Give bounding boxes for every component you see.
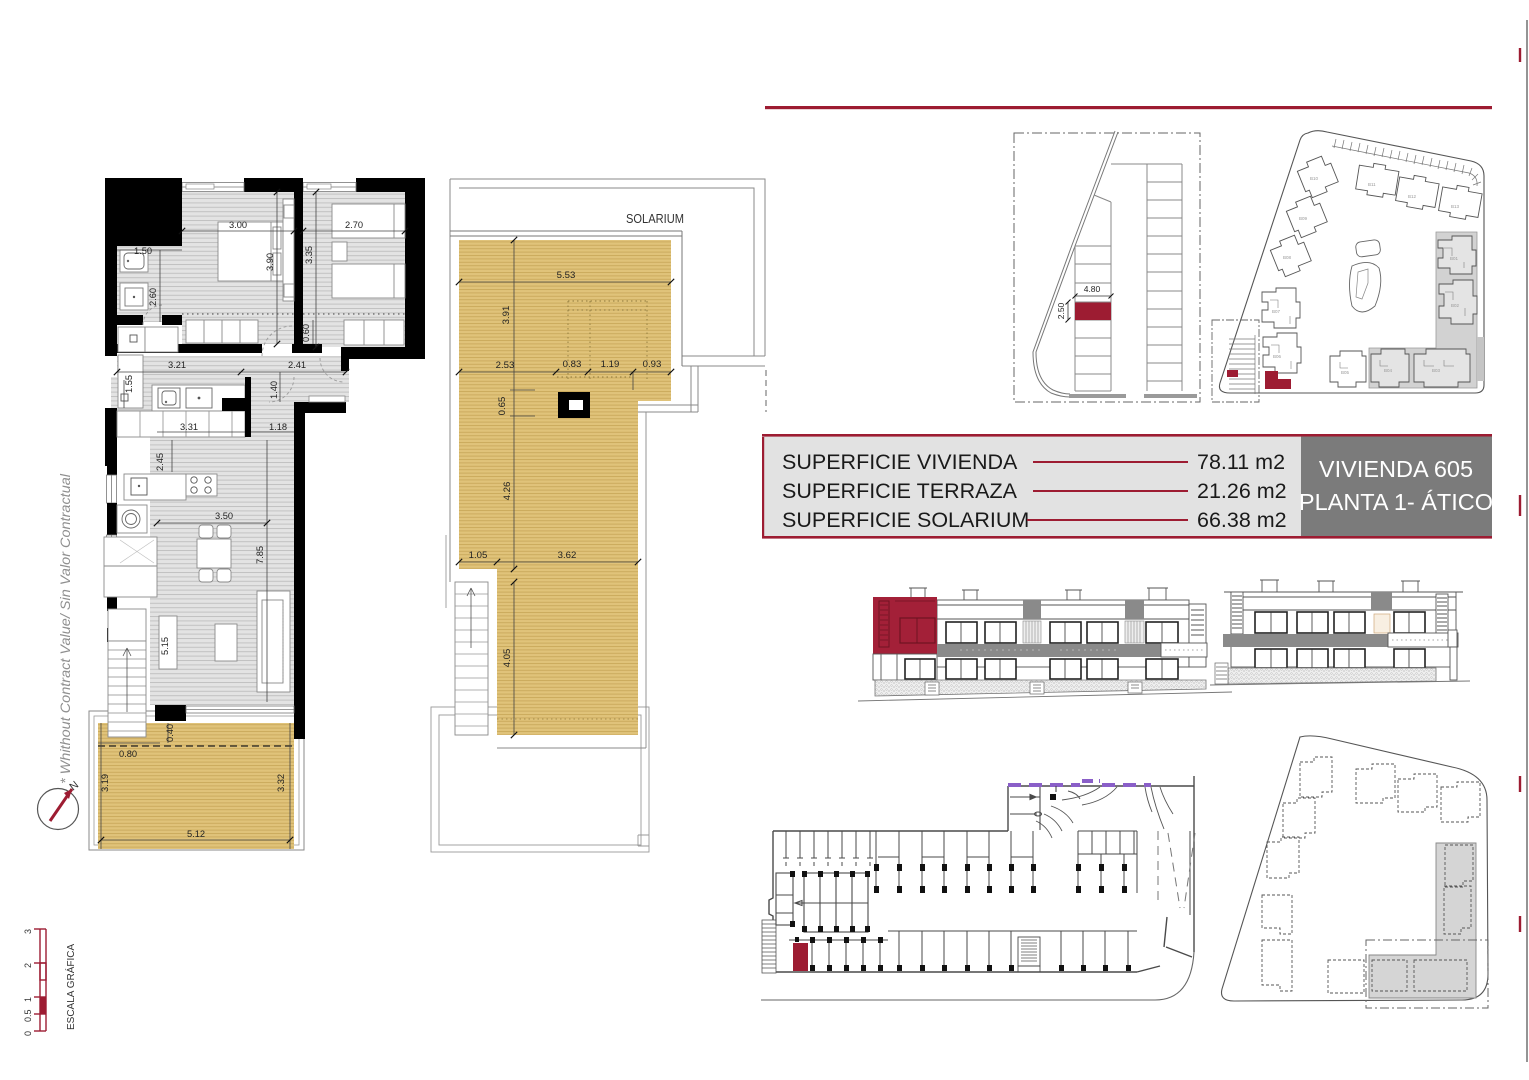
svg-text:1: 1: [23, 997, 33, 1002]
svg-text:0.60: 0.60: [301, 324, 311, 342]
svg-text:B01: B01: [1450, 256, 1459, 261]
svg-text:B11: B11: [1368, 182, 1376, 187]
svg-text:1.50: 1.50: [134, 246, 152, 256]
svg-text:0.40: 0.40: [165, 724, 175, 742]
svg-text:5.12: 5.12: [187, 829, 205, 839]
svg-text:0.83: 0.83: [563, 359, 582, 370]
svg-text:2: 2: [23, 963, 33, 968]
svg-text:PLANTA 1- ÁTICO: PLANTA 1- ÁTICO: [1299, 489, 1493, 515]
svg-text:3.00: 3.00: [229, 220, 247, 230]
svg-text:21.26 m2: 21.26 m2: [1197, 479, 1287, 503]
svg-text:2.41: 2.41: [288, 360, 306, 370]
svg-text:ESCALA GRÁFICA: ESCALA GRÁFICA: [64, 944, 77, 1030]
svg-text:1.55: 1.55: [124, 375, 134, 393]
svg-text:B06: B06: [1273, 354, 1282, 359]
svg-text:* Whithout Contract Value/ Sin: * Whithout Contract Value/ Sin Valor Con…: [58, 473, 73, 784]
svg-text:SOLARIUM: SOLARIUM: [626, 211, 684, 226]
svg-text:3.50: 3.50: [215, 511, 233, 521]
svg-text:1.18: 1.18: [269, 422, 287, 432]
svg-text:4.26: 4.26: [502, 482, 513, 501]
svg-text:5.15: 5.15: [160, 637, 170, 655]
svg-text:0.5: 0.5: [23, 1009, 33, 1022]
svg-text:3.62: 3.62: [558, 550, 577, 561]
svg-text:B05: B05: [1341, 370, 1350, 375]
svg-text:3.35: 3.35: [304, 246, 314, 264]
svg-text:4.05: 4.05: [502, 649, 513, 668]
svg-text:3.91: 3.91: [501, 306, 512, 325]
svg-text:2.50: 2.50: [1056, 302, 1066, 319]
svg-text:5.53: 5.53: [557, 270, 576, 281]
svg-text:SUPERFICIE TERRAZA: SUPERFICIE TERRAZA: [782, 479, 1018, 503]
svg-text:1.05: 1.05: [469, 550, 488, 561]
svg-text:3.19: 3.19: [100, 774, 110, 792]
svg-text:B08: B08: [1283, 255, 1292, 260]
svg-text:VIVIENDA 605: VIVIENDA 605: [1319, 456, 1473, 482]
svg-text:0.65: 0.65: [497, 397, 508, 416]
svg-text:66.38 m2: 66.38 m2: [1197, 508, 1287, 532]
svg-text:B04: B04: [1384, 368, 1393, 373]
svg-text:B10: B10: [1310, 176, 1319, 181]
svg-text:7.85: 7.85: [255, 546, 265, 564]
svg-text:0.80: 0.80: [119, 749, 137, 759]
svg-text:SUPERFICIE VIVIENDA: SUPERFICIE VIVIENDA: [782, 450, 1018, 474]
svg-text:1.19: 1.19: [601, 359, 620, 370]
svg-text:B12: B12: [1408, 194, 1417, 199]
svg-text:78.11 m2: 78.11 m2: [1197, 450, 1285, 474]
svg-text:B03: B03: [1432, 368, 1441, 373]
svg-text:B02: B02: [1451, 303, 1460, 308]
svg-text:3: 3: [23, 929, 33, 934]
svg-text:2.53: 2.53: [496, 360, 515, 371]
svg-text:2.60: 2.60: [148, 288, 158, 306]
svg-text:3.21: 3.21: [168, 360, 186, 370]
svg-text:B13: B13: [1451, 204, 1460, 209]
svg-text:B07: B07: [1272, 309, 1281, 314]
svg-text:3.32: 3.32: [276, 774, 286, 792]
svg-text:2.70: 2.70: [345, 220, 363, 230]
svg-text:B09: B09: [1299, 216, 1308, 221]
svg-text:3.31: 3.31: [180, 422, 198, 432]
svg-text:1.40: 1.40: [269, 381, 279, 399]
svg-text:4.80: 4.80: [1084, 284, 1101, 294]
svg-text:3.90: 3.90: [265, 253, 275, 271]
svg-text:0.93: 0.93: [643, 359, 662, 370]
svg-text:SUPERFICIE SOLARIUM: SUPERFICIE SOLARIUM: [782, 508, 1029, 532]
svg-text:0: 0: [23, 1031, 33, 1036]
svg-text:2.45: 2.45: [155, 453, 165, 471]
